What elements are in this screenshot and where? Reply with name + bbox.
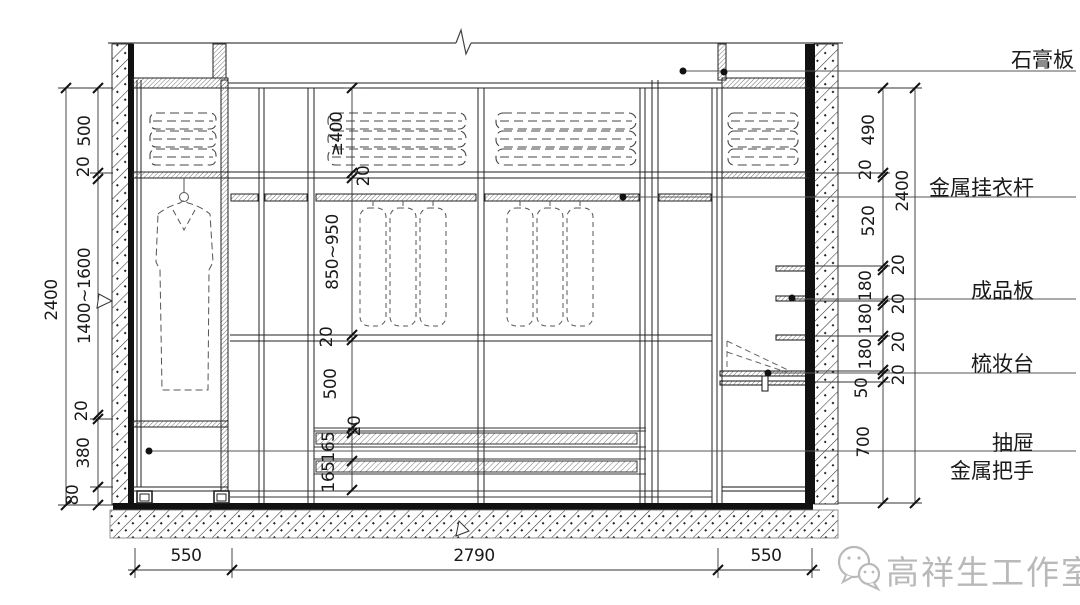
dim-right-20b: 20 xyxy=(889,255,909,276)
dim-int-500: 500 xyxy=(321,369,341,400)
dim-right-520: 520 xyxy=(859,206,879,237)
dim-left-20a: 20 xyxy=(74,157,94,178)
dim-left-380: 380 xyxy=(74,438,94,469)
dim-int-20c: 20 xyxy=(345,416,365,437)
dim-int-20b: 20 xyxy=(317,327,337,348)
left-wall xyxy=(112,44,134,504)
coat-outline xyxy=(156,178,213,390)
dim-right-180b: 180 xyxy=(856,304,876,335)
dim-bottom-550-left: 550 xyxy=(171,546,202,566)
finish-arrows xyxy=(97,294,469,536)
label-finished-board: 成品板 xyxy=(864,275,1034,305)
label-drawer: 抽屉 xyxy=(864,427,1034,457)
wechat-icon xyxy=(839,547,879,589)
right-wall xyxy=(805,44,838,504)
floor xyxy=(110,503,838,538)
gypsum-ceiling-band xyxy=(133,44,806,88)
dim-bottom-550-right: 550 xyxy=(751,546,782,566)
left-cabinet-section xyxy=(133,421,229,503)
hanging-garments xyxy=(360,201,593,326)
folded-clothes xyxy=(150,113,798,165)
dim-left-80: 80 xyxy=(63,485,83,506)
wardrobe-elevation-drawing: 2400 500 20 1400~1600 20 380 80 ≥400 20 … xyxy=(0,0,1080,605)
label-dressing-table: 梳妆台 xyxy=(864,348,1034,378)
callout-leaders xyxy=(146,68,1077,455)
label-gypsum-board: 石膏板 xyxy=(904,44,1074,74)
dim-int-20a: 20 xyxy=(354,166,374,187)
top-shelf xyxy=(133,172,810,178)
dim-right-490: 490 xyxy=(859,115,879,146)
dim-right-50: 50 xyxy=(852,378,872,399)
dim-int-400: ≥400 xyxy=(327,112,347,157)
dim-int-165a: 165 xyxy=(319,432,339,463)
watermark-studio-name: 高祥生工作室 xyxy=(886,546,1080,594)
dim-bottom-2790: 2790 xyxy=(453,546,494,566)
dim-int-165b: 165 xyxy=(319,462,339,493)
dim-left-1400: 1400~1600 xyxy=(75,248,95,344)
dim-left-500: 500 xyxy=(75,116,95,147)
hanging-rod xyxy=(231,194,711,201)
dim-left-overall: 2400 xyxy=(42,279,62,320)
label-metal-handle: 金属把手 xyxy=(864,455,1034,485)
label-hanging-rod: 金属挂衣杆 xyxy=(864,172,1034,202)
dim-int-850: 850~950 xyxy=(323,214,343,290)
dim-left-20b: 20 xyxy=(72,401,92,422)
